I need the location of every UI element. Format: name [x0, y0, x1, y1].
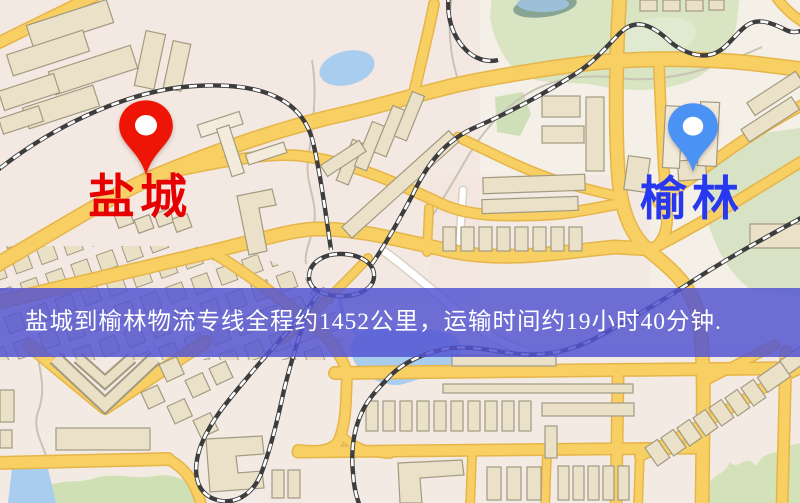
map-canvas [0, 0, 800, 503]
blue-map-pin-icon[interactable] [666, 102, 720, 174]
route-info-text: 盐城到榆林物流专线全程约1452公里，运输时间约19小时40分钟. [0, 288, 800, 357]
red-map-pin-icon[interactable] [117, 99, 175, 177]
origin-label: 盐城 [88, 175, 192, 222]
destination-label: 榆林 [640, 177, 744, 224]
map-screenshot: 盐城到榆林物流专线全程约1452公里，运输时间约19小时40分钟. 盐城 榆林 [0, 0, 800, 503]
route-info-banner: 盐城到榆林物流专线全程约1452公里，运输时间约19小时40分钟. [0, 288, 800, 357]
